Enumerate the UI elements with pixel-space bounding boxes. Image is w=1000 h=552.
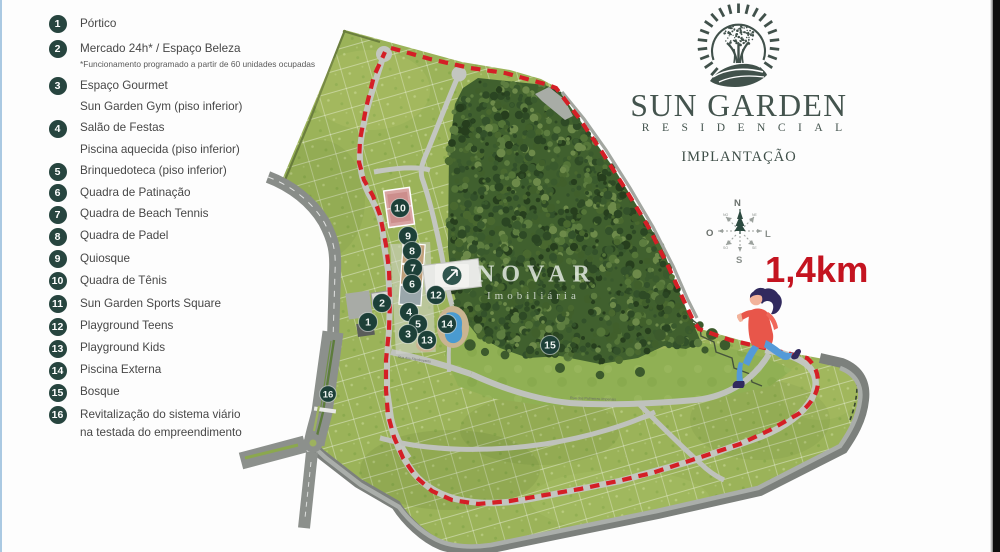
svg-text:14: 14 (441, 318, 453, 330)
svg-text:NO: NO (723, 213, 729, 217)
svg-text:Imobiliária: Imobiliária (487, 290, 580, 302)
svg-text:6: 6 (409, 278, 415, 290)
svg-text:10: 10 (394, 202, 406, 214)
svg-text:O: O (706, 228, 713, 239)
svg-text:16: 16 (323, 389, 334, 400)
svg-text:3: 3 (405, 328, 411, 340)
svg-text:12: 12 (430, 289, 442, 301)
svg-text:2: 2 (379, 297, 385, 309)
svg-text:1: 1 (365, 316, 371, 328)
svg-text:15: 15 (544, 339, 556, 351)
svg-text:N: N (734, 198, 741, 209)
svg-text:S: S (736, 255, 742, 266)
svg-text:SE: SE (752, 246, 757, 250)
svg-text:NE: NE (752, 213, 758, 217)
svg-text:13: 13 (421, 334, 433, 346)
svg-text:4: 4 (406, 306, 412, 318)
svg-text:8: 8 (409, 245, 415, 257)
svg-text:SO: SO (723, 246, 728, 250)
svg-text:L: L (765, 229, 771, 240)
svg-text:9: 9 (405, 230, 411, 242)
svg-text:7: 7 (410, 262, 416, 274)
svg-text:NOVAR: NOVAR (477, 262, 597, 288)
